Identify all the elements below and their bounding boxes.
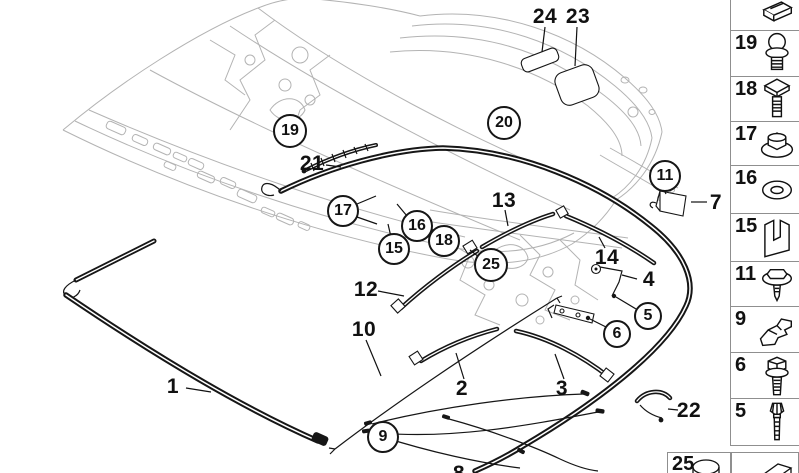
callout-4[interactable]: 4 (643, 268, 655, 292)
sidebar-bottom-item-25[interactable]: 25 (667, 452, 731, 473)
callout-11[interactable]: 11 (649, 160, 681, 192)
sidebar-item-11[interactable]: 11 (731, 262, 799, 307)
square-head-bolt-icon (755, 77, 799, 121)
sidebar-item-number: 16 (735, 167, 757, 190)
callout-10[interactable]: 10 (352, 318, 376, 342)
callout-17[interactable]: 17 (327, 195, 359, 227)
sidebar-item-9[interactable]: 9 (731, 307, 799, 353)
callout-23[interactable]: 23 (566, 5, 590, 29)
cable-set-8 (362, 389, 605, 471)
ball-stud-icon (755, 32, 799, 76)
bracket-7 (650, 191, 686, 216)
washer-icon (755, 168, 799, 212)
sidebar-bottom-item-partial[interactable] (731, 452, 799, 473)
left-hinge-mechanism (210, 20, 330, 140)
callout-1[interactable]: 1 (167, 375, 179, 399)
c-clip-icon (755, 216, 799, 260)
seal-12 (401, 251, 477, 308)
callout-12[interactable]: 12 (354, 278, 378, 302)
sidebar-item-number: 18 (735, 78, 757, 101)
sidebar-item-number: 15 (735, 215, 757, 238)
sidebar-item-15[interactable]: 15 (731, 214, 799, 262)
callout-15[interactable]: 15 (378, 233, 410, 265)
cap-cylinder-icon (684, 455, 728, 473)
callout-5[interactable]: 5 (634, 302, 662, 330)
washer-screw-icon (755, 262, 799, 306)
callout-22[interactable]: 22 (677, 399, 701, 423)
callout-25[interactable]: 25 (474, 248, 508, 282)
patch-24 (520, 47, 560, 74)
sidebar-item-6[interactable]: 6 (731, 353, 799, 399)
sidebar-item-17[interactable]: 17 (731, 122, 799, 166)
flange-nut-icon (755, 122, 799, 166)
sidebar-item-5[interactable]: 5 (731, 399, 799, 446)
retainer-clip-icon (755, 0, 799, 34)
callout-6[interactable]: 6 (603, 320, 631, 348)
bracket-4-6 (548, 265, 622, 324)
callout-21[interactable]: 21 (300, 152, 324, 176)
seal-2 (421, 329, 497, 361)
sidebar-item-number: 9 (735, 308, 746, 331)
hardware-sidebar: 191817161511965 (730, 0, 799, 446)
callout-7[interactable]: 7 (710, 191, 722, 215)
sidebar-item-number: 5 (735, 400, 746, 423)
parts-diagram-page: 2423192120117171615181325141245610123922… (0, 0, 799, 473)
callout-18[interactable]: 18 (428, 225, 460, 257)
patch-23 (552, 62, 601, 108)
z-bracket-icon (755, 308, 799, 352)
cover-22 (637, 392, 670, 422)
callout-8[interactable]: 8 (453, 462, 465, 473)
callout-24[interactable]: 24 (533, 5, 557, 29)
callout-14[interactable]: 14 (595, 246, 619, 270)
v-clip-icon (752, 455, 796, 473)
leader-lines (186, 27, 707, 410)
hex-bolt-icon (755, 354, 799, 398)
sidebar-item-19[interactable]: 19 (731, 31, 799, 77)
sidebar-item-16[interactable]: 16 (731, 166, 799, 214)
sidebar-item-number: 17 (735, 123, 757, 146)
callout-20[interactable]: 20 (487, 106, 521, 140)
expanding-rivet-icon (755, 400, 799, 444)
roof-frame-wireframe (63, 0, 678, 325)
callout-3[interactable]: 3 (556, 377, 568, 401)
sidebar-item-number: 19 (735, 32, 757, 55)
sidebar-item-top-partial[interactable] (731, 0, 799, 31)
seal-1-main (66, 295, 318, 441)
callout-2[interactable]: 2 (456, 377, 468, 401)
sidebar-item-18[interactable]: 18 (731, 77, 799, 122)
seal-3 (516, 331, 609, 377)
callout-13[interactable]: 13 (492, 189, 516, 213)
callout-9[interactable]: 9 (367, 421, 399, 453)
sidebar-item-number: 11 (735, 263, 756, 286)
sidebar-item-number: 6 (735, 354, 746, 377)
callout-19[interactable]: 19 (273, 114, 307, 148)
